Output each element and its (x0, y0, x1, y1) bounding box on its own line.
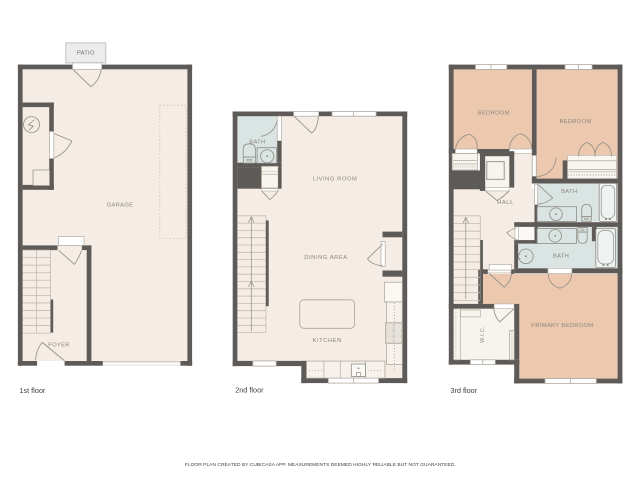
svg-text:DINING AREA: DINING AREA (304, 255, 347, 261)
svg-text:PRIMARY BEDROOM: PRIMARY BEDROOM (531, 323, 593, 329)
svg-text:HALL: HALL (497, 200, 514, 206)
svg-text:BEDROOM: BEDROOM (559, 119, 591, 125)
svg-text:2nd floor: 2nd floor (235, 385, 264, 394)
svg-text:FOYER: FOYER (48, 342, 69, 348)
svg-text:1st floor: 1st floor (19, 386, 46, 395)
svg-text:LIVING ROOM: LIVING ROOM (313, 177, 358, 183)
svg-text:FLOOR PLAN CREATED BY CUBICASA: FLOOR PLAN CREATED BY CUBICASA APP. MEAS… (185, 462, 456, 468)
svg-text:BEDROOM: BEDROOM (478, 110, 510, 116)
svg-text:W.I.C.: W.I.C. (480, 326, 486, 343)
svg-text:BATH: BATH (249, 140, 265, 146)
svg-text:BATH: BATH (553, 254, 569, 260)
svg-text:3rd floor: 3rd floor (450, 386, 477, 395)
svg-text:KITCHEN: KITCHEN (313, 338, 342, 344)
svg-text:GARAGE: GARAGE (107, 203, 134, 209)
svg-text:BATH: BATH (561, 189, 577, 195)
svg-text:PATIO: PATIO (77, 50, 95, 56)
